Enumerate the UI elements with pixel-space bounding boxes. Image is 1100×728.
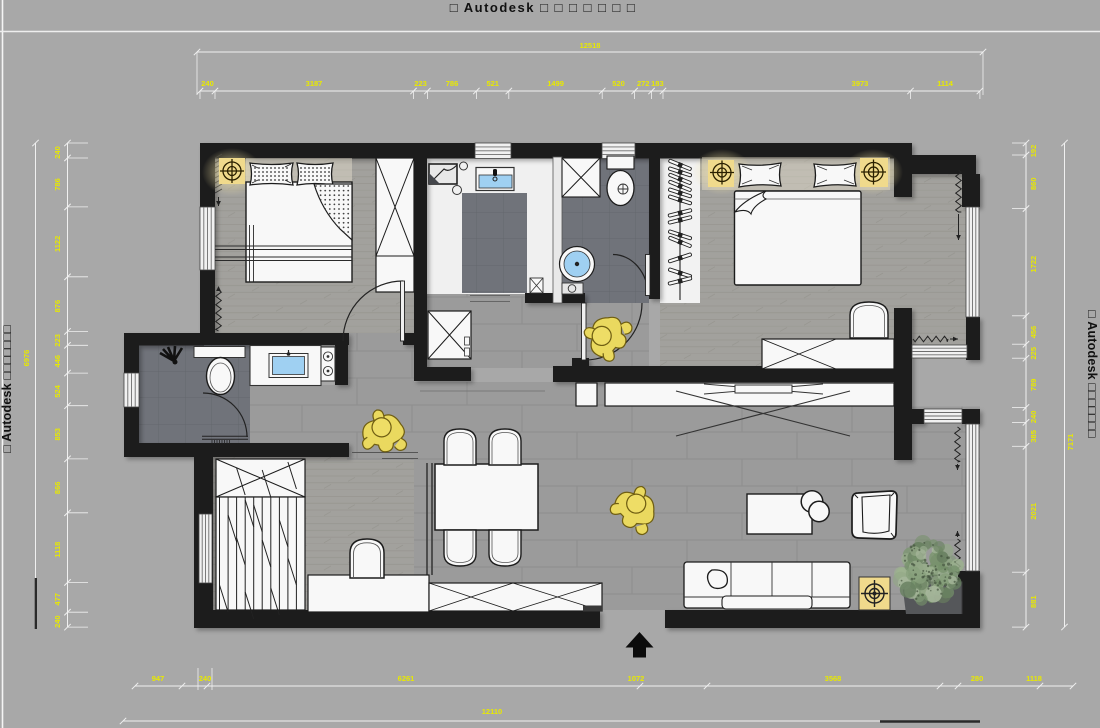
svg-text:1499: 1499: [547, 79, 564, 88]
svg-text:866: 866: [53, 482, 62, 495]
svg-text:2021: 2021: [1029, 503, 1038, 520]
svg-text:385: 385: [1029, 430, 1038, 443]
svg-text:225: 225: [1029, 347, 1038, 360]
svg-text:786: 786: [446, 79, 459, 88]
svg-text:1072: 1072: [628, 674, 645, 683]
svg-text:786: 786: [53, 178, 62, 191]
svg-text:272: 272: [637, 79, 650, 88]
svg-text:521: 521: [486, 79, 499, 88]
svg-text:1114: 1114: [937, 79, 954, 88]
svg-text:7171: 7171: [1066, 434, 1075, 451]
svg-text:240: 240: [53, 146, 62, 159]
svg-text:240: 240: [201, 79, 214, 88]
svg-text:12518: 12518: [580, 41, 601, 50]
svg-text:3568: 3568: [825, 674, 842, 683]
svg-text:1722: 1722: [1029, 256, 1038, 273]
svg-text:183: 183: [651, 79, 664, 88]
svg-text:280: 280: [971, 674, 984, 683]
svg-text:1118: 1118: [1026, 674, 1042, 683]
svg-text:240: 240: [199, 674, 212, 683]
svg-text:6261: 6261: [398, 674, 415, 683]
svg-text:192: 192: [1029, 145, 1038, 158]
svg-text:1122: 1122: [53, 236, 62, 252]
svg-text:456: 456: [1029, 326, 1038, 339]
svg-text:223: 223: [53, 334, 62, 347]
svg-text:876: 876: [53, 300, 62, 313]
svg-text:240: 240: [1029, 411, 1038, 424]
svg-text:853: 853: [53, 428, 62, 441]
svg-text:477: 477: [53, 593, 62, 606]
svg-text:□ Autodesk □□□□□□□: □ Autodesk □□□□□□□: [0, 325, 14, 453]
svg-text:3973: 3973: [852, 79, 869, 88]
svg-text:860: 860: [1029, 177, 1038, 190]
svg-text:□ Autodesk □□□□□□□: □ Autodesk □□□□□□□: [1085, 310, 1099, 438]
svg-text:446: 446: [53, 355, 62, 368]
svg-text:789: 789: [1029, 379, 1038, 392]
svg-text:3187: 3187: [306, 79, 323, 88]
svg-text:524: 524: [53, 384, 62, 397]
svg-text:□ Autodesk □ □ □ □ □ □ □: □ Autodesk □ □ □ □ □ □ □: [450, 0, 636, 15]
svg-text:6976: 6976: [22, 350, 31, 367]
svg-text:240: 240: [53, 615, 62, 628]
svg-text:947: 947: [152, 674, 165, 683]
svg-text:520: 520: [612, 79, 625, 88]
svg-text:223: 223: [414, 79, 427, 88]
svg-text:1118: 1118: [53, 542, 62, 558]
svg-text:12110: 12110: [482, 707, 502, 716]
svg-text:881: 881: [1029, 595, 1038, 608]
